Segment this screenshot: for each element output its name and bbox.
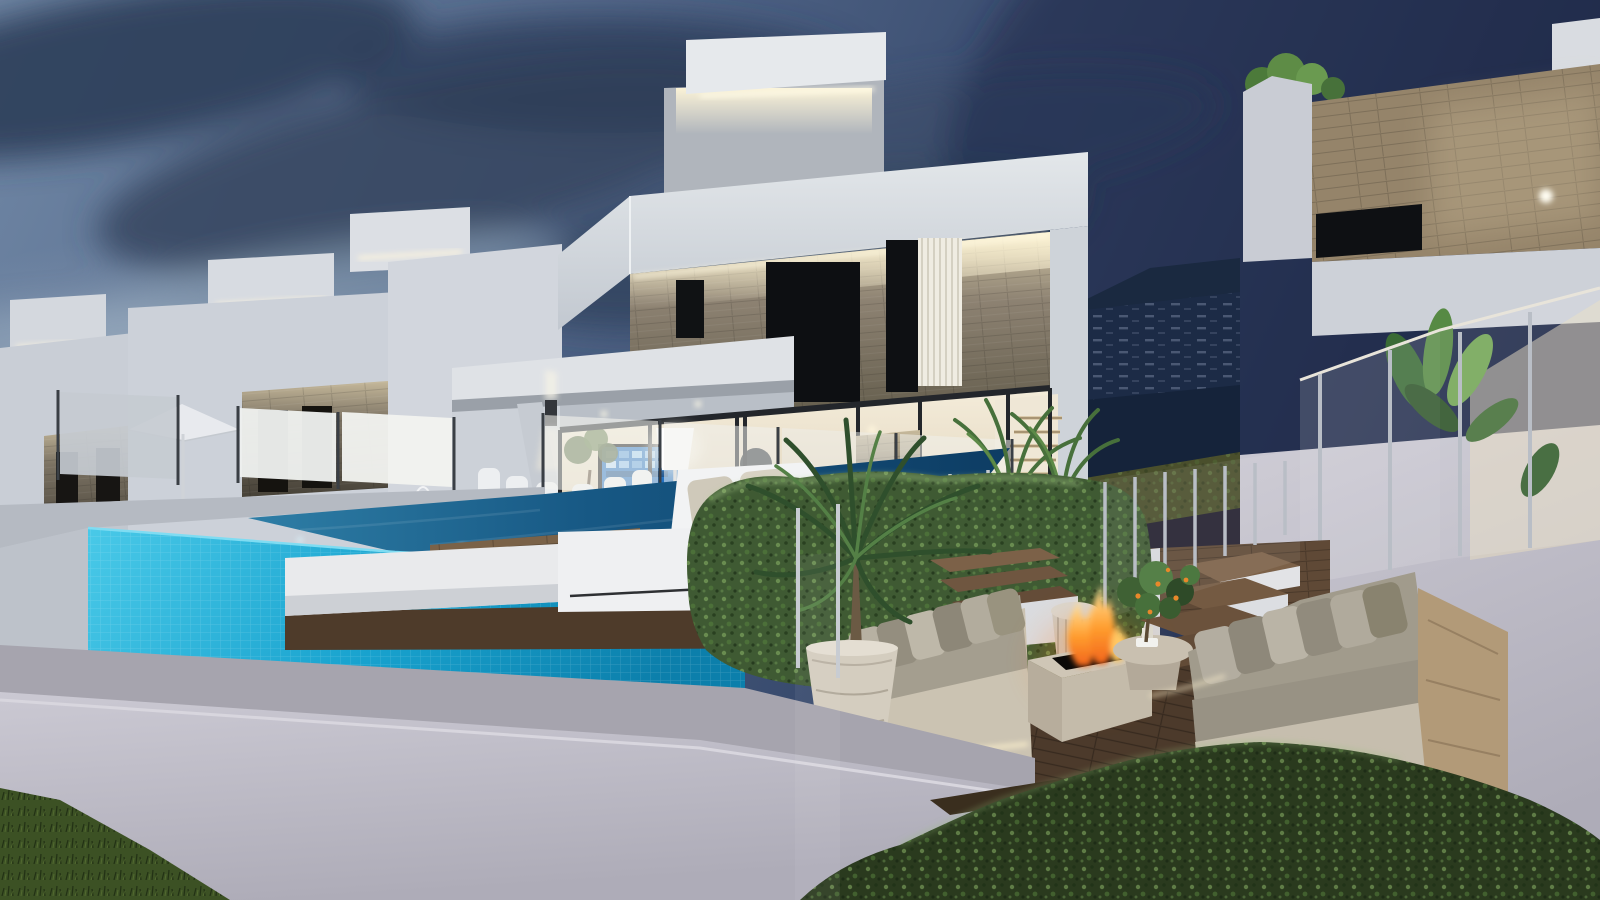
pool-light-icon (297, 537, 303, 543)
downlight-icon (601, 411, 607, 417)
glass-panel (545, 415, 658, 495)
chimney-volume (1243, 76, 1312, 262)
window-right (886, 240, 918, 392)
foreground-glass (795, 552, 840, 900)
glass-panel (60, 392, 176, 479)
window-blinds (918, 238, 962, 386)
downlight-icon (695, 401, 701, 407)
render-canvas (0, 0, 1600, 900)
window-small (676, 280, 704, 338)
villa-render-scene (0, 0, 1600, 900)
left-wall-strip (0, 528, 88, 662)
glass-panel (240, 408, 336, 482)
wood-band-light (1430, 86, 1600, 240)
downlight-icon (1539, 189, 1553, 203)
glass-panel (342, 412, 452, 487)
